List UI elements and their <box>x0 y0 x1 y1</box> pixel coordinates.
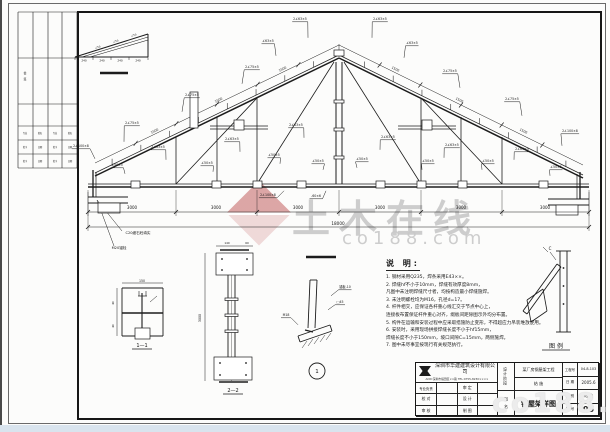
cad-text: 1500 <box>519 128 528 135</box>
notes-block: 说 明: 1. 钢材采用Q235，焊条采用E43××。 2. 焊缝hf不小于10… <box>386 251 566 359</box>
member-label: M18 <box>283 313 290 317</box>
role-label: 校 对 <box>416 394 437 405</box>
cad-line <box>320 335 325 342</box>
cad-text: 3000 <box>375 205 386 210</box>
dim-tick <box>134 141 138 146</box>
member-label: ∠50×5 <box>111 163 123 167</box>
plate-rect <box>190 92 198 128</box>
note-line: 7. 图中未尽事宜按现行有关规范执行。 <box>386 342 566 350</box>
cad-line <box>300 331 332 342</box>
member-label: ∠50×5 <box>550 165 562 169</box>
leader-line <box>182 98 184 112</box>
role-value <box>478 383 498 394</box>
title-block: 深圳市华建建筑设计有限公司 ADD:深圳市福田区××路 TEL:0755-823… <box>415 362 599 416</box>
note-line: 连接板布置保证杆件重心对齐，缀板间距除图示外均分布置。 <box>386 312 566 320</box>
plate-rect <box>376 181 385 188</box>
notes-body: 1. 钢材采用Q235，焊条采用E43××。 2. 焊缝hf不小于10mm，焊缝… <box>386 274 566 350</box>
member-label: 2∠100×8 <box>260 193 276 197</box>
plate-rect <box>225 330 238 333</box>
sig-strip-text: 签字 <box>53 159 58 163</box>
cad-line <box>308 280 310 328</box>
date-label: 日 期 <box>563 377 578 391</box>
member-label: 2∠63×5 <box>445 143 459 147</box>
cad-text: 60 <box>245 241 249 245</box>
sig-strip-text: 专业 <box>53 131 58 135</box>
role-value <box>437 383 458 394</box>
dim-tick <box>256 82 260 87</box>
note-line: 4. 杆件相交，应保证各杆重心线汇交于节点中心上， <box>386 304 566 312</box>
category-value: 结 施 <box>578 390 600 404</box>
bolt-dot <box>245 374 247 376</box>
leader-line <box>328 305 335 310</box>
leader-line <box>323 164 325 170</box>
plate-rect <box>234 120 244 130</box>
leader-line <box>482 164 483 170</box>
company-logo <box>419 366 431 376</box>
plate-rect <box>225 314 238 317</box>
detail-bubble-number: 1 <box>315 369 319 375</box>
plate-rect <box>214 357 252 380</box>
cad-text: 18000 <box>331 221 345 226</box>
member-label: 2∠63×5 <box>151 145 165 149</box>
member-label: 2∠63×5 <box>293 17 307 21</box>
cad-text: 3000 <box>456 205 467 210</box>
member-label: □45 <box>336 300 343 304</box>
sig-strip-text: 日期 <box>68 159 73 163</box>
role-value <box>478 394 498 405</box>
member-label: ∠50×5 <box>268 153 280 157</box>
bolt-dot <box>246 269 248 271</box>
sheet-label: 图 号 <box>563 404 578 418</box>
web-member <box>344 62 421 184</box>
cad-line <box>315 280 317 328</box>
plate-rect <box>417 181 426 188</box>
sig-strip-text: 签字 <box>23 145 28 149</box>
member-label: 2∠63×5 <box>381 135 395 139</box>
bolt-dot <box>221 269 223 271</box>
project-no-label: 工程号 <box>563 363 578 377</box>
web-member <box>176 98 257 184</box>
stage-value: 结 施 <box>515 378 563 391</box>
sheet-number: 05 <box>578 404 600 418</box>
cad-text: 2—2 <box>227 388 238 394</box>
member-label: 2∠63×5 <box>289 123 303 127</box>
name-label: 图 名 <box>498 391 515 417</box>
cad-text: M20锚栓 <box>112 245 127 250</box>
plate-rect <box>334 156 344 159</box>
cad-line <box>150 296 157 302</box>
note-line: 焊缝长度不小于150mm，坡口间隙C=15mm，两侧施焊。 <box>386 335 566 343</box>
member-label: 2∠75×5 <box>185 93 199 97</box>
cad-text: 1500 <box>278 66 287 73</box>
date-value: 2005.6 <box>578 377 600 391</box>
role-label: 制 图 <box>458 406 479 417</box>
role-value <box>478 406 498 417</box>
sig-strip-text: 姓名 <box>68 131 72 135</box>
member-label: ∠63×5 <box>262 39 274 43</box>
cad-text: 40 <box>111 301 115 305</box>
leader-line <box>277 191 284 198</box>
notes-title: 说 明: <box>386 258 420 271</box>
cad-text: C20细石砼填实 <box>125 230 150 235</box>
member-label: ∠50×5 <box>312 159 324 163</box>
sig-strip-text: 姓名 <box>38 131 42 135</box>
cad-text: 3000 <box>198 314 202 322</box>
note-line: 5. 构件在运输和安装过程中应采取措施防止变形，不得超应力吊装堆放使用。 <box>386 320 566 328</box>
note-line: 6. 安装时，采用现场拼接焊缝长度不小于hf15mm， <box>386 327 566 335</box>
plate-rect <box>135 328 150 339</box>
plate-rect <box>334 50 344 56</box>
plate-rect <box>225 298 238 301</box>
dim-tick <box>418 83 422 88</box>
drawing-title: 钢屋架详图 <box>515 391 563 417</box>
sig-strip-text: 签字 <box>53 145 58 149</box>
leader-line <box>242 70 244 84</box>
member-label: 2∠63×5 <box>515 147 529 151</box>
member-label: ∠50×5 <box>356 157 368 161</box>
plate-rect <box>98 203 120 213</box>
member-label: 2∠75×5 <box>245 65 259 69</box>
plate-rect <box>297 181 306 188</box>
leader-line <box>280 158 281 164</box>
role-label: 设 计 <box>458 394 479 405</box>
sig-strip-text: 专业 <box>23 131 28 135</box>
bolt-dot <box>245 362 247 364</box>
bolt-dot <box>219 362 221 364</box>
note-line: 1. 钢材采用Q235，焊条采用E43××。 <box>386 274 566 282</box>
cad-text: 240 <box>81 59 87 63</box>
plate-rect <box>334 100 344 103</box>
role-label: 审 定 <box>458 383 479 394</box>
cad-text: ∠50 <box>131 32 138 38</box>
cad-line <box>302 341 307 348</box>
leader-line <box>213 166 214 172</box>
sig-strip-text: 日期 <box>38 145 43 149</box>
note-line: 2. 焊缝hf不小于10mm，焊缝有效厚度8mm， <box>386 282 566 290</box>
cad-text: 1500 <box>391 66 400 73</box>
member-label: ∠50×5 <box>422 159 434 163</box>
dim-tick <box>540 143 544 148</box>
plate-rect <box>422 120 432 130</box>
cad-line <box>75 34 148 57</box>
leader-line <box>550 170 551 176</box>
stage-label: 设计阶段 <box>498 363 515 391</box>
plate-rect <box>216 253 253 275</box>
leader-line <box>458 74 460 88</box>
member-label: ∠63×5 <box>406 41 418 45</box>
plate-rect <box>131 181 140 188</box>
leader-line <box>291 318 298 325</box>
cad-text: 3000 <box>293 205 304 210</box>
dim-tick <box>378 63 382 68</box>
leader-line <box>275 44 277 56</box>
member-label: 2∠63×5 <box>373 17 387 21</box>
cad-line <box>308 339 313 346</box>
cad-text: 240 <box>135 59 141 63</box>
leader-line <box>356 162 358 168</box>
leader-line <box>422 164 423 170</box>
leader-line <box>331 290 339 296</box>
cad-line <box>298 325 330 336</box>
cad-line <box>298 336 300 342</box>
bolt-dot <box>219 374 221 376</box>
project-no: 04-8-103 <box>578 363 600 377</box>
company-cell: 深圳市华建建筑设计有限公司 ADD:深圳市福田区××路 TEL:0755-823… <box>416 363 498 383</box>
cad-text: 40 <box>111 324 115 328</box>
member-label: 2∠75×5 <box>505 97 519 101</box>
leader-line <box>323 191 327 199</box>
cad-text: 240 <box>117 59 123 63</box>
dim-tick <box>296 62 300 67</box>
plate-rect <box>334 128 344 131</box>
note-line: 3. 未注明螺栓均为M16，孔径d=17。 <box>386 297 566 305</box>
plate-rect <box>253 181 262 188</box>
cad-text: 3000 <box>127 205 138 210</box>
member-label: 2∠63×5 <box>225 137 239 141</box>
company-name: 深圳市华建建筑设计有限公司 <box>433 364 497 376</box>
scan-bottom-strip <box>0 425 610 432</box>
role-label: 审 核 <box>416 406 437 417</box>
role-value <box>437 394 458 405</box>
role-value <box>437 406 458 417</box>
member-label: 2∠75×5 <box>125 121 139 125</box>
sig-strip-text: 日期 <box>38 159 43 163</box>
member-label: 2∠75×5 <box>443 69 457 73</box>
plate-rect <box>539 181 548 188</box>
sig-strip-text: 会 <box>23 70 26 75</box>
member-label: 2∠100×8 <box>562 129 578 133</box>
member-label: 2∠100×8 <box>73 144 89 148</box>
web-member <box>421 98 502 184</box>
cad-text: 3000 <box>540 205 551 210</box>
cad-text: 1—1 <box>136 343 147 349</box>
cad-line <box>314 337 319 344</box>
leader-line <box>90 149 95 159</box>
member-label: 锚板-10 <box>339 284 351 289</box>
leader-line <box>520 102 522 116</box>
sig-strip-text: 签字 <box>23 159 28 163</box>
note-line: 凡图中未注明焊缝尺寸者，均按构造最小焊缝施焊。 <box>386 289 566 297</box>
dim-tick <box>500 123 504 128</box>
plate-rect <box>556 205 578 215</box>
member-label: ∠50×5 <box>201 161 213 165</box>
category-label: 图 别 <box>563 390 578 404</box>
dim-tick <box>174 121 178 126</box>
leader-line <box>124 168 126 174</box>
cad-text: 240 <box>99 59 105 63</box>
leader-line <box>404 46 406 58</box>
project-name: 某厂房钢屋架工程 <box>515 363 563 378</box>
cad-text: 1500 <box>150 128 159 135</box>
sig-strip-text: 签 <box>23 76 26 81</box>
cad-text: 150 <box>139 279 145 283</box>
bolt-dot <box>221 258 223 260</box>
leader-line <box>561 134 562 146</box>
plate-rect <box>458 181 467 188</box>
cad-text: 3000 <box>211 205 222 210</box>
bolt-dot <box>246 258 248 260</box>
member-label: ∠50×5 <box>482 159 494 163</box>
cad-line <box>326 333 331 340</box>
scanned-truss-drawing-page: 土木在线 co188.com 2∠100×82∠75×52∠75×52∠75×5… <box>0 0 610 432</box>
plate-rect <box>212 181 221 188</box>
role-label: 专业负责 <box>416 383 437 394</box>
member-label: -60×6 <box>311 194 321 198</box>
cad-line <box>330 325 332 331</box>
cad-text: 140 <box>224 241 230 245</box>
